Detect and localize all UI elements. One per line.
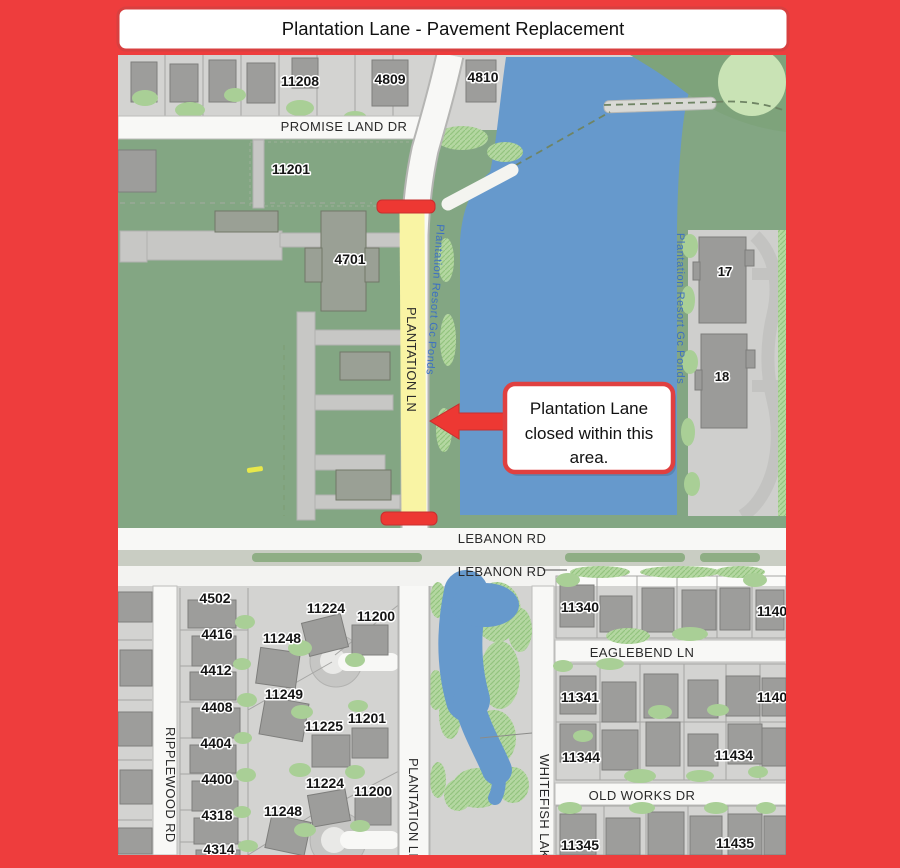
address-label-11341: 11341 [561, 689, 599, 705]
address-label-11248-n: 11248 [263, 630, 301, 646]
closure-bar-north [377, 200, 435, 213]
street-label-eaglebend-ln: EAGLEBEND LN [590, 645, 695, 660]
street-label-plantation-ln-closed: PLANTATION LN [404, 307, 419, 412]
address-label-11225: 11225 [305, 718, 343, 734]
address-label-11340: 11340 [561, 599, 599, 615]
callout-line-2: closed within this [525, 424, 654, 443]
address-label-4404: 4404 [200, 735, 231, 751]
address-label-11249: 11249 [265, 686, 303, 702]
closure-bar-south [381, 512, 437, 525]
address-label-4502: 4502 [199, 590, 230, 606]
callout-line-1: Plantation Lane [530, 399, 648, 418]
street-label-lebanon-rd-north: LEBANON RD [458, 531, 547, 546]
address-label-1140-r1: 1140 [757, 603, 788, 619]
street-label-ripplewood-rd: RIPPLEWOOD RD [163, 727, 178, 843]
closure-notice-map: PROMISE LAND DR LEBANON RD LEBANON RD EA… [0, 0, 900, 868]
address-label-4809: 4809 [374, 71, 405, 87]
street-label-whitefish-lake: WHITEFISH LAKE [537, 754, 552, 868]
callout-line-3: area. [570, 448, 609, 467]
address-label-11434: 11434 [715, 747, 753, 763]
street-label-plantation-ln-south: PLANTATION LN [406, 758, 421, 863]
address-label-11248-s: 11248 [264, 803, 302, 819]
address-label-11344: 11344 [562, 749, 600, 765]
water-label-east-pond: Plantation Resort Gc Ponds [674, 233, 686, 384]
address-label-11201-s: 11201 [348, 710, 386, 726]
map-title: Plantation Lane - Pavement Replacement [282, 18, 624, 39]
address-label-11224-s: 11224 [306, 775, 344, 791]
address-label-11200-s: 11200 [354, 783, 392, 799]
address-label-4416: 4416 [201, 626, 232, 642]
address-label-4314: 4314 [203, 841, 234, 857]
address-label-11435: 11435 [716, 835, 754, 851]
address-label-4318: 4318 [201, 807, 232, 823]
map-canvas: PROMISE LAND DR LEBANON RD LEBANON RD EA… [118, 48, 787, 868]
lebanon-north-verge [118, 516, 786, 528]
address-label-18: 18 [715, 369, 729, 384]
address-label-11224-n: 11224 [307, 600, 345, 616]
address-label-11201-top: 11201 [272, 161, 310, 177]
address-label-11345: 11345 [561, 837, 599, 853]
address-label-4400: 4400 [201, 771, 232, 787]
address-label-11200-n: 11200 [357, 608, 395, 624]
address-label-11208: 11208 [281, 73, 319, 89]
address-label-4412: 4412 [200, 662, 231, 678]
address-label-4408: 4408 [201, 699, 232, 715]
address-label-17: 17 [718, 264, 732, 279]
address-label-1140-r2: 1140 [757, 689, 788, 705]
title-bar: Plantation Lane - Pavement Replacement [118, 8, 788, 50]
street-label-lebanon-rd-south: LEBANON RD [458, 564, 547, 579]
clearing-green [718, 48, 786, 116]
address-label-4810: 4810 [467, 69, 498, 85]
street-label-promise-land-dr: PROMISE LAND DR [281, 119, 408, 134]
street-label-old-works-dr: OLD WORKS DR [589, 788, 696, 803]
address-label-4701: 4701 [334, 251, 365, 267]
condo-complex [681, 230, 786, 520]
